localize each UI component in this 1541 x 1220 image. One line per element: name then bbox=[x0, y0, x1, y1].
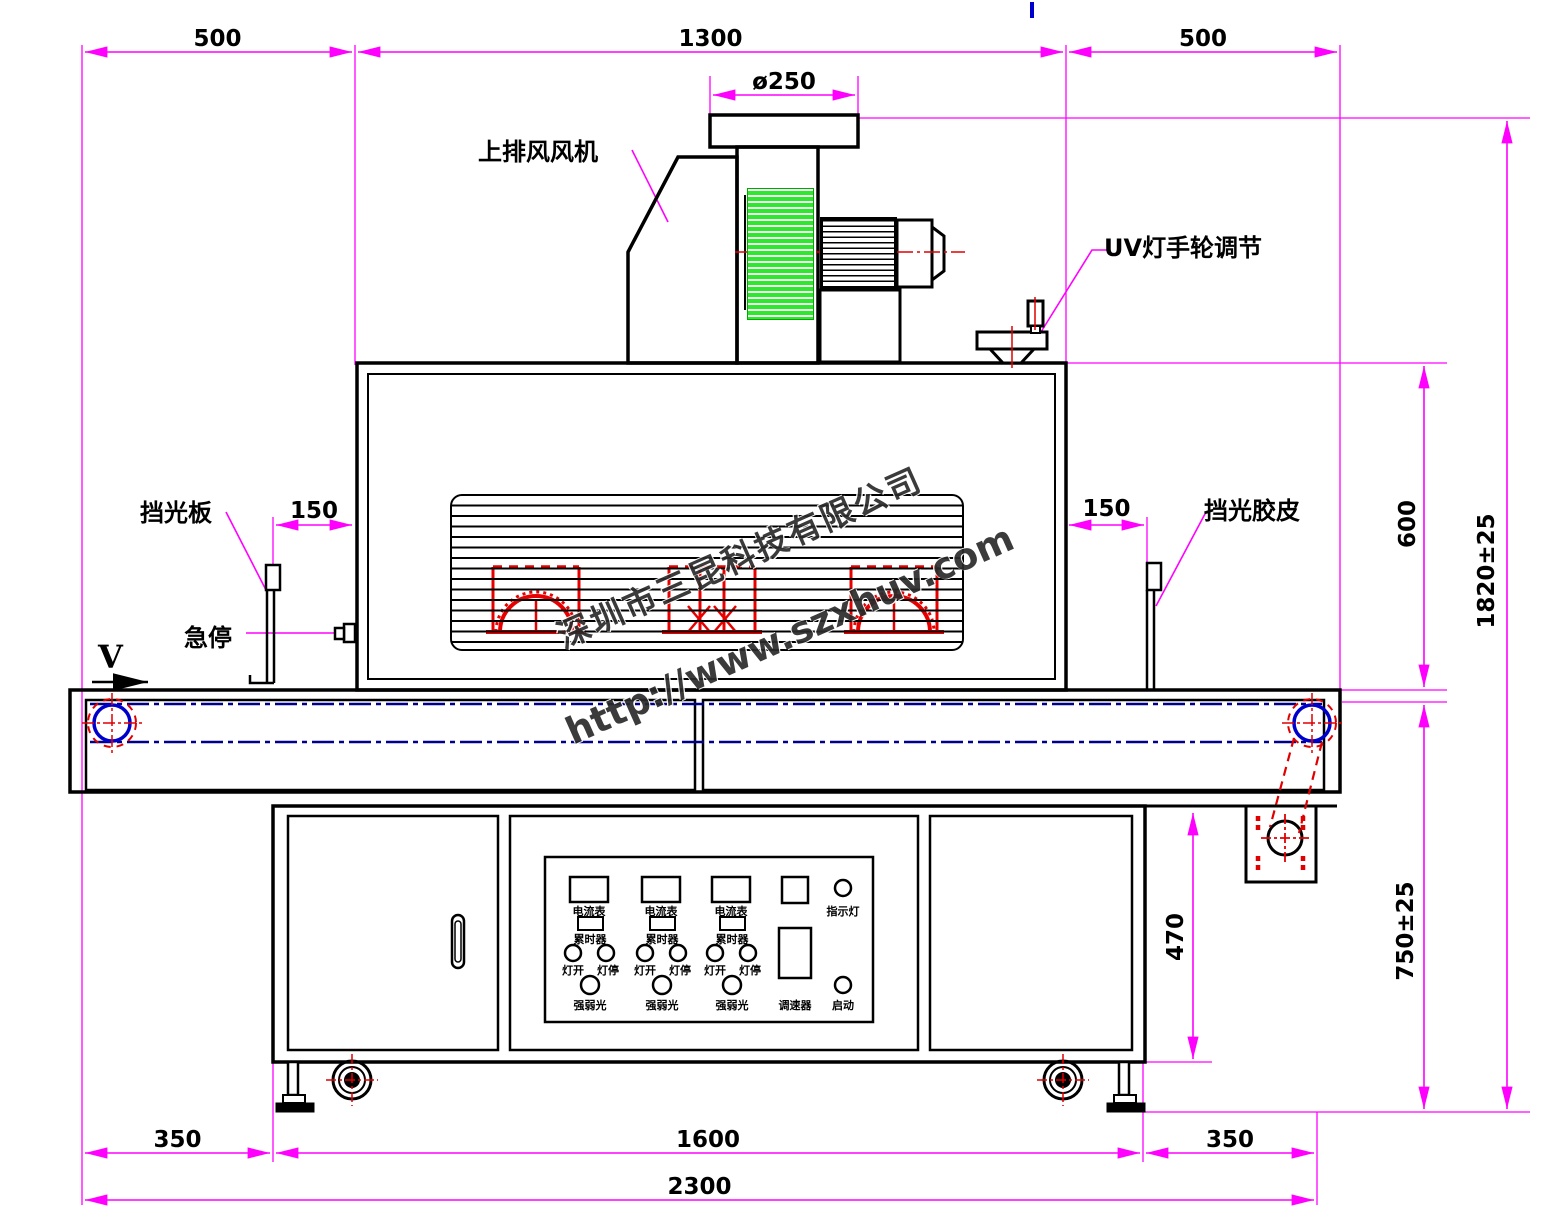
lamp-off-button-2 bbox=[670, 945, 686, 961]
light-shield-plate-left bbox=[250, 565, 280, 683]
ammeter-label-3: 电流表 bbox=[701, 903, 761, 919]
cabinet-door-right bbox=[930, 816, 1132, 1050]
ammeter-display-2 bbox=[642, 877, 680, 902]
door-handle bbox=[452, 915, 464, 968]
dim-bottom-left: 350 bbox=[84, 1127, 271, 1153]
emergency-stop-button bbox=[335, 624, 355, 642]
lamp-off-button-1 bbox=[598, 945, 614, 961]
speed-controller-label: 调速器 bbox=[765, 997, 825, 1013]
intensity-label-2: 强弱光 bbox=[632, 997, 692, 1013]
lamp-off-label-2: 灯停 bbox=[660, 962, 700, 978]
motor-shaft-cone bbox=[932, 227, 944, 280]
ammeter-display-3 bbox=[712, 877, 750, 902]
lamp-on-button-1 bbox=[565, 945, 581, 961]
dim-top-right: 500 bbox=[1068, 26, 1338, 52]
hour-meter-label-1: 累时器 bbox=[560, 931, 620, 947]
label-emergency-stop: 急停 bbox=[184, 618, 232, 653]
belt-direction-letter: V bbox=[98, 638, 123, 676]
dim-bottom-right: 350 bbox=[1145, 1127, 1315, 1153]
belt-roller-left bbox=[82, 693, 142, 753]
dim-bottom-center: 1600 bbox=[275, 1127, 1141, 1153]
lamp-on-label-2: 灯开 bbox=[625, 962, 665, 978]
drive-motor-bracket bbox=[1246, 738, 1322, 882]
leveling-foot-right bbox=[1107, 1062, 1145, 1112]
lamp-off-label-1: 灯停 bbox=[588, 962, 628, 978]
label-top-exhaust-fan: 上排风风机 bbox=[478, 132, 598, 167]
speed-controller bbox=[779, 928, 811, 978]
belt-roller-right bbox=[1282, 693, 1342, 753]
light-shield-rubber-right bbox=[1147, 563, 1161, 690]
label-shield-plate: 挡光板 bbox=[140, 493, 212, 528]
start-button bbox=[835, 977, 851, 993]
panel-square-window bbox=[782, 877, 808, 903]
lamp-off-label-3: 灯停 bbox=[730, 962, 770, 978]
hour-meter-label-3: 累时器 bbox=[702, 931, 762, 947]
conveyor bbox=[70, 690, 1340, 792]
dim-left-gap: 150 bbox=[275, 498, 353, 524]
ammeter-label-1: 电流表 bbox=[559, 903, 619, 919]
belt-centerlines bbox=[90, 704, 1322, 742]
lamp-on-label-1: 灯开 bbox=[553, 962, 593, 978]
lamp-on-label-3: 灯开 bbox=[695, 962, 735, 978]
dim-flange-diameter: ø250 bbox=[712, 69, 856, 95]
lamp-on-button-2 bbox=[637, 945, 653, 961]
motor-front-cap bbox=[897, 220, 932, 287]
intensity-label-1: 强弱光 bbox=[560, 997, 620, 1013]
intensity-switch-3 bbox=[723, 976, 741, 994]
ammeter-label-2: 电流表 bbox=[631, 903, 691, 919]
motor-pedestal bbox=[820, 290, 900, 362]
intensity-label-3: 强弱光 bbox=[702, 997, 762, 1013]
dim-total-height: 1820±25 bbox=[1474, 497, 1500, 645]
dim-cabinet-height: 470 bbox=[1163, 887, 1189, 987]
label-shield-rubber: 挡光胶皮 bbox=[1204, 491, 1300, 526]
fan-scroll-housing bbox=[628, 157, 737, 363]
label-uv-handwheel: UV灯手轮调节 bbox=[1104, 228, 1262, 263]
fan-flange bbox=[710, 115, 858, 147]
cabinet-door-left bbox=[288, 816, 498, 1050]
indicator-lamp-label: 指示灯 bbox=[813, 903, 873, 919]
dim-right-gap: 150 bbox=[1068, 496, 1145, 522]
drive-belt-lines bbox=[1270, 738, 1322, 833]
fan-motor-body bbox=[820, 217, 897, 290]
lamp-on-button-3 bbox=[707, 945, 723, 961]
ammeter-display-1 bbox=[570, 877, 608, 902]
lamp-off-button-3 bbox=[740, 945, 756, 961]
dim-top-center: 1300 bbox=[357, 26, 1064, 52]
fan-impeller-green bbox=[747, 188, 814, 320]
intensity-switch-1 bbox=[581, 976, 599, 994]
dim-oven-height: 600 bbox=[1395, 464, 1421, 584]
cad-drawing-canvas: 500 1300 500 ø250 150 150 350 1600 350 2… bbox=[0, 0, 1541, 1220]
indicator-lamp bbox=[835, 880, 851, 896]
hour-meter-label-2: 累时器 bbox=[632, 931, 692, 947]
dim-belt-height: 750±25 bbox=[1393, 857, 1419, 1005]
dim-total-length: 2300 bbox=[84, 1174, 1315, 1200]
leveling-foot-left bbox=[276, 1062, 314, 1112]
dim-top-left: 500 bbox=[82, 26, 353, 52]
intensity-switch-2 bbox=[653, 976, 671, 994]
start-label: 启动 bbox=[823, 997, 863, 1013]
